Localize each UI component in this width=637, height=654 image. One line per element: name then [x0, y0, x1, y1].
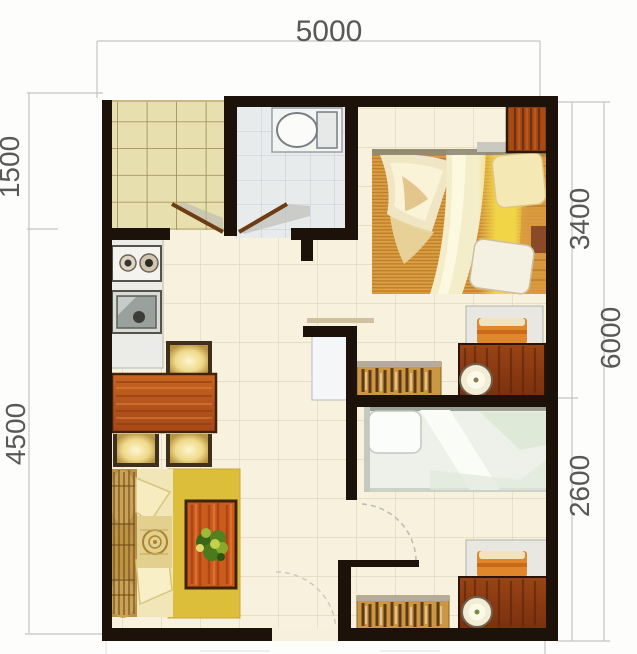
svg-text:2600: 2600 [564, 455, 595, 517]
svg-text:6000: 6000 [595, 307, 626, 369]
svg-text:5000: 5000 [296, 15, 363, 48]
svg-text:1500: 1500 [0, 136, 25, 198]
svg-text:3400: 3400 [564, 188, 595, 250]
svg-text:4500: 4500 [0, 403, 31, 465]
